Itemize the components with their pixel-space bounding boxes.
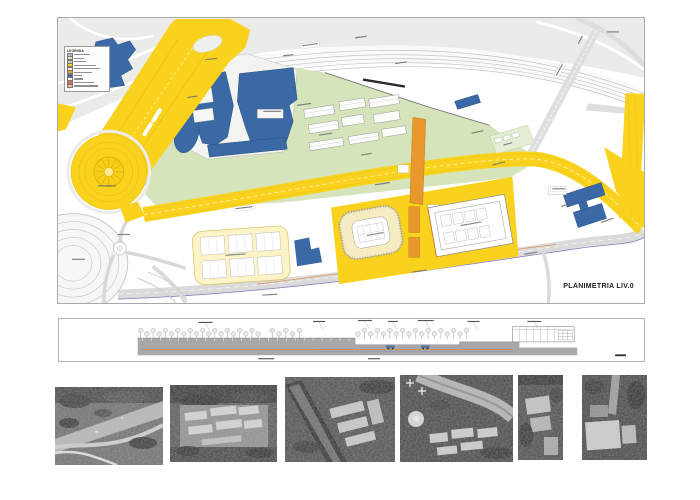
- legend-row: [67, 74, 107, 77]
- plan-legend: LEGENDA: [64, 46, 110, 92]
- section-trees: [138, 328, 469, 339]
- site-plan-panel: LEGENDA PLANIMETRIA LIV.0: [57, 17, 645, 304]
- sports-courts: [490, 125, 535, 154]
- aerial-photo-6: [582, 375, 647, 460]
- legend-rows: [67, 54, 107, 88]
- legend-label-bar: [74, 68, 100, 69]
- aerial-photo-5: [518, 375, 563, 460]
- legend-row: [67, 85, 107, 88]
- legend-label-bar: [74, 54, 90, 55]
- legend-row: [67, 57, 107, 60]
- circular-plaza: [68, 131, 150, 222]
- legend-label-bar: [74, 78, 83, 79]
- legend-row: [67, 71, 107, 74]
- legend-row: [67, 78, 107, 81]
- legend-row: [67, 67, 107, 70]
- legend-label-bar: [74, 82, 94, 83]
- aerial-photo-4: [400, 375, 513, 462]
- legend-label-bar: [74, 65, 96, 66]
- section-panel: [58, 318, 645, 362]
- legend-header: LEGENDA: [67, 49, 107, 53]
- legend-row: [67, 81, 107, 84]
- rail-platform-bar: [363, 80, 405, 87]
- site-plan-drawing: [58, 18, 644, 303]
- plan-title: PLANIMETRIA LIV.0: [563, 283, 634, 290]
- aerial-photo-2: [170, 385, 277, 462]
- housing-block: [192, 225, 291, 285]
- legend-row: [67, 54, 107, 57]
- legend-label-bar: [74, 75, 82, 76]
- footbridge-blue: [455, 94, 481, 109]
- blue-l-building: [294, 237, 322, 266]
- legend-row: [67, 60, 107, 63]
- section-caption-bar: [615, 354, 626, 356]
- section-ground: [138, 338, 577, 355]
- aerial-photo-1: [55, 387, 163, 465]
- legend-label-bar: [74, 58, 84, 59]
- legend-label-bar: [74, 61, 86, 62]
- legend-label-bar: [74, 72, 92, 73]
- legend-color-chip: [67, 84, 73, 88]
- legend-label-bar: [74, 85, 98, 86]
- presentation-board: LEGENDA PLANIMETRIA LIV.0: [0, 0, 700, 500]
- aerial-photo-3: [285, 377, 395, 462]
- legend-row: [67, 64, 107, 67]
- section-building: [512, 327, 574, 342]
- section-drawing: [59, 319, 644, 361]
